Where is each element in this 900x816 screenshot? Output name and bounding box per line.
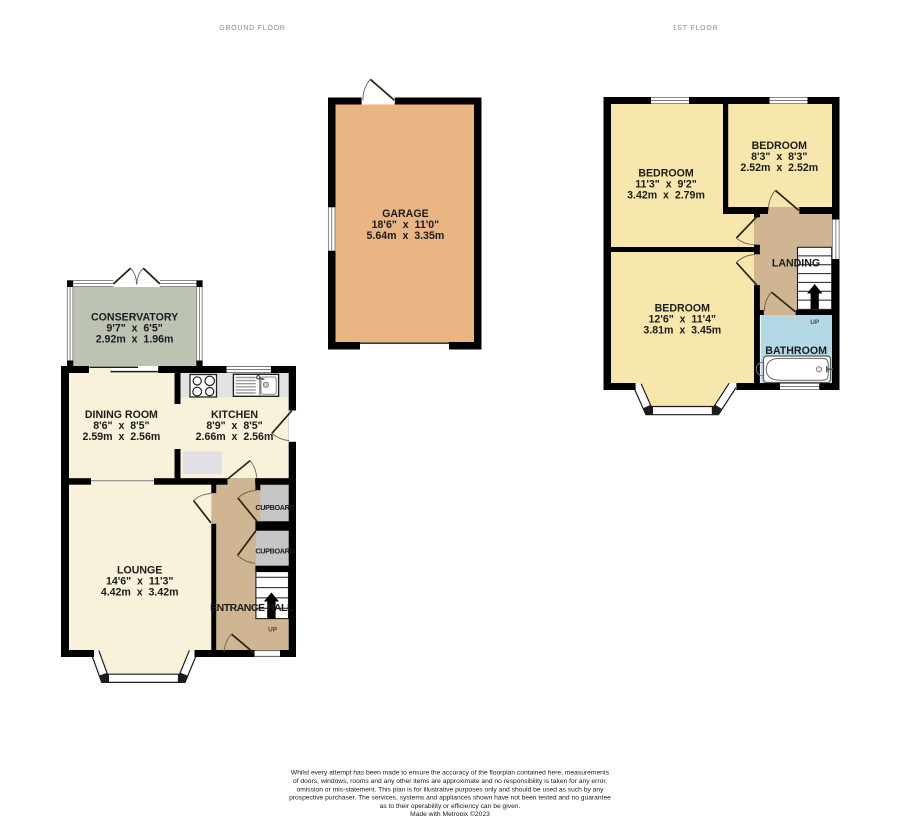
svg-text:Made with Metropix ©2023: Made with Metropix ©2023	[410, 810, 490, 816]
svg-text:as to their operability or eff: as to their operability or efficiency ca…	[380, 803, 521, 810]
svg-text:2.92m x 1.96m: 2.92m x 1.96m	[96, 334, 174, 346]
svg-text:CUPBOARD: CUPBOARD	[255, 546, 294, 555]
svg-text:2.66m x 2.56m: 2.66m x 2.56m	[196, 431, 274, 443]
svg-text:3.42m x 2.79m: 3.42m x 2.79m	[627, 190, 705, 202]
svg-text:ENTRANCE HALL: ENTRANCE HALL	[210, 602, 294, 614]
svg-text:2.52m x 2.52m: 2.52m x 2.52m	[740, 162, 818, 174]
svg-text:UP: UP	[268, 626, 278, 633]
svg-text:GROUND FLOOR: GROUND FLOOR	[219, 25, 285, 32]
svg-text:2.59m x 2.56m: 2.59m x 2.56m	[83, 431, 161, 443]
svg-text:3.81m x 3.45m: 3.81m x 3.45m	[643, 324, 721, 336]
svg-text:omission or mis-statement. Thi: omission or mis-statement. This plan is …	[297, 786, 605, 793]
svg-text:1ST FLOOR: 1ST FLOOR	[673, 25, 719, 32]
svg-text:CUPBOARD: CUPBOARD	[255, 503, 294, 512]
svg-text:BATHROOM: BATHROOM	[765, 345, 827, 357]
svg-text:5.64m x 3.35m: 5.64m x 3.35m	[367, 230, 445, 242]
svg-text:Whilst every attempt has been: Whilst every attempt has been made to en…	[291, 770, 610, 777]
svg-text:prospective purchaser. The ser: prospective purchaser. The services, sys…	[289, 795, 611, 802]
svg-text:4.42m x 3.42m: 4.42m x 3.42m	[101, 586, 179, 598]
svg-text:of doors, windows, rooms and a: of doors, windows, rooms and any other i…	[293, 778, 607, 785]
svg-text:UP: UP	[810, 319, 820, 326]
svg-text:LANDING: LANDING	[772, 258, 820, 270]
